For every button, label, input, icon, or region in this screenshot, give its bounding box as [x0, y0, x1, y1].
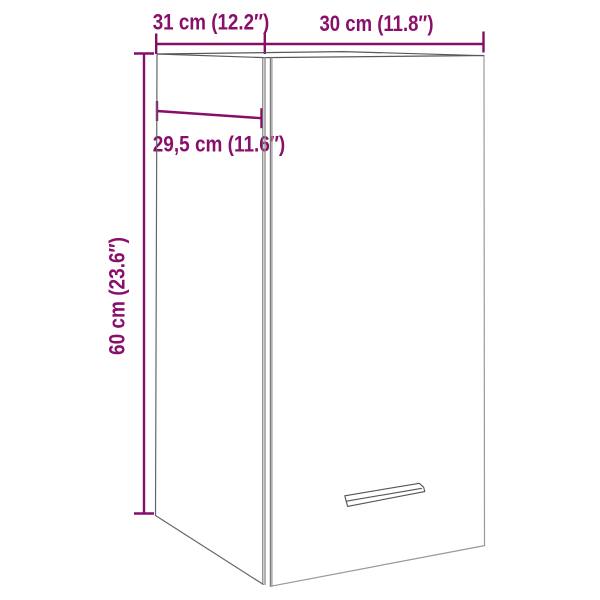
svg-text:60 cm (23.6″): 60 cm (23.6″)	[105, 237, 130, 355]
svg-text:31 cm (12.2″): 31 cm (12.2″)	[153, 10, 270, 35]
svg-text:30 cm (11.8″): 30 cm (11.8″)	[320, 11, 434, 36]
